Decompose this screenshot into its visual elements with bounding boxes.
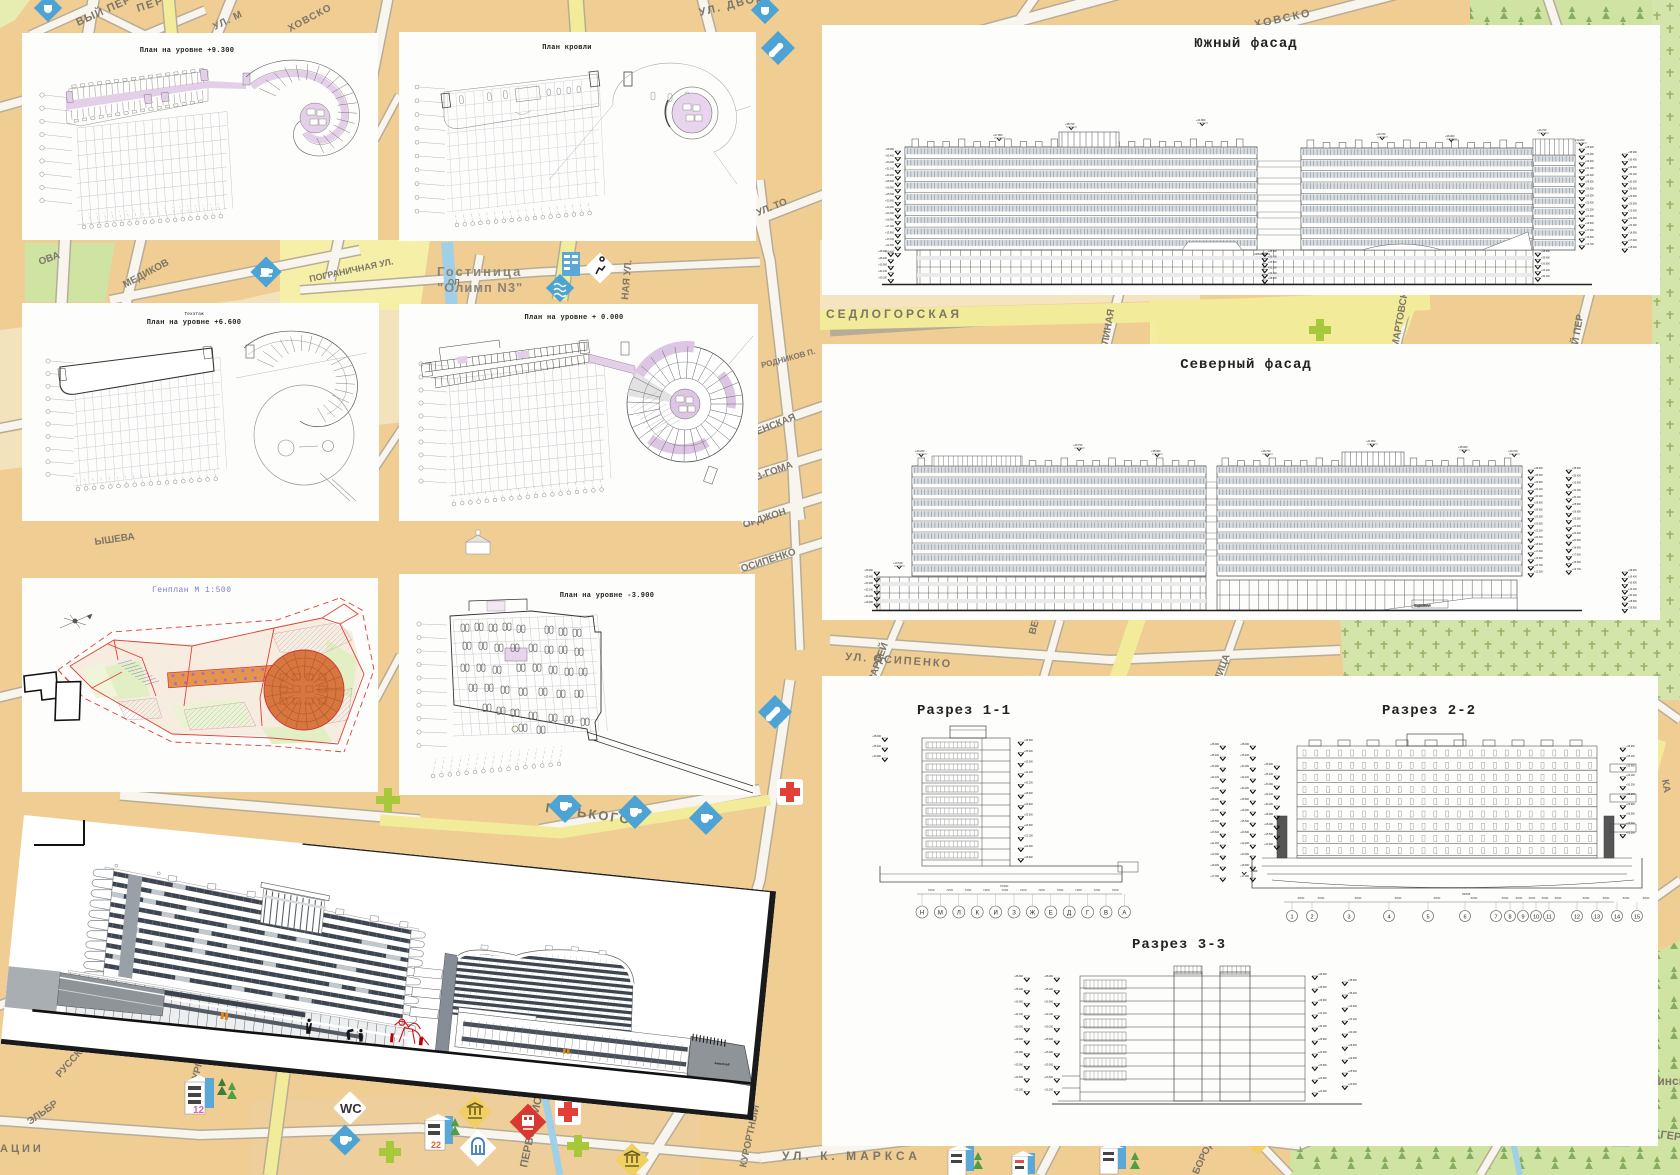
- svg-text:12: 12: [1574, 915, 1580, 921]
- svg-text:+20.300: +20.300: [885, 212, 894, 215]
- svg-text:+35.400: +35.400: [872, 745, 881, 748]
- svg-text:+38.900: +38.900: [1024, 739, 1033, 742]
- svg-text:Гостиница: Гостиница: [437, 264, 522, 279]
- svg-text:+35.400: +35.400: [1348, 992, 1357, 995]
- svg-text:+33.900: +33.900: [885, 161, 894, 164]
- svg-text:+23.600: +23.600: [1240, 831, 1249, 834]
- svg-text:+25.500: +25.500: [1348, 1070, 1357, 1073]
- svg-text:+35.400: +35.400: [1628, 159, 1637, 162]
- svg-text:+38.900: +38.900: [1458, 445, 1468, 449]
- svg-text:6000: 6000: [1643, 896, 1650, 900]
- svg-text:+30.200: +30.200: [1210, 787, 1219, 790]
- svg-text:+30.200: +30.200: [878, 277, 887, 280]
- svg-text:+33.900: +33.900: [1268, 261, 1277, 264]
- svg-text:+23.600: +23.600: [1348, 1083, 1357, 1086]
- svg-text:+30.200: +30.200: [1348, 1031, 1357, 1034]
- svg-text:6000: 6000: [1434, 896, 1441, 900]
- svg-text:+20.300: +20.300: [1534, 536, 1543, 539]
- svg-text:8: 8: [1508, 915, 1511, 921]
- svg-text:Северный фасад: Северный фасад: [1180, 357, 1312, 373]
- svg-text:6000: 6000: [1298, 896, 1305, 900]
- svg-text:+38.900: +38.900: [864, 569, 873, 572]
- svg-text:В: В: [1104, 911, 1108, 917]
- svg-text:+30.200: +30.200: [1541, 275, 1550, 278]
- svg-text:+26.900: +26.900: [1318, 1051, 1327, 1054]
- svg-text:7200: 7200: [1112, 888, 1119, 892]
- svg-text:Южный фасад: Южный фасад: [1194, 36, 1297, 52]
- svg-text:+30.200: +30.200: [1268, 272, 1277, 275]
- svg-text:+25.500: +25.500: [1626, 812, 1635, 815]
- svg-text:+32.100: +32.100: [1534, 488, 1543, 491]
- svg-text:+39.200: +39.200: [915, 449, 925, 453]
- svg-text:+22.200: +22.200: [1572, 532, 1581, 535]
- svg-text:+32.100: +32.100: [878, 270, 887, 273]
- svg-text:14: 14: [1614, 915, 1620, 921]
- svg-text:+30.200: +30.200: [885, 174, 894, 177]
- svg-text:+38.900: +38.900: [1534, 467, 1543, 470]
- svg-text:1: 1: [1290, 915, 1293, 921]
- svg-text:+18.900: +18.900: [1534, 543, 1543, 546]
- svg-text:7200: 7200: [1057, 888, 1064, 892]
- svg-text:+18.900: +18.900: [1210, 864, 1219, 867]
- svg-text:+35.400: +35.400: [1628, 575, 1637, 578]
- svg-text:+26.900: +26.900: [1585, 188, 1594, 191]
- svg-text:+28.900: +28.900: [1268, 277, 1277, 280]
- svg-text:+35.400: +35.400: [1240, 754, 1249, 757]
- svg-text:+18.900: +18.900: [1585, 222, 1594, 225]
- svg-text:+26.900: +26.900: [885, 187, 894, 190]
- svg-text:+32.100: +32.100: [1628, 588, 1637, 591]
- svg-text:КА: КА: [1659, 779, 1672, 794]
- svg-text:+25.500: +25.500: [1210, 820, 1219, 823]
- svg-text:+38.900: +38.900: [885, 148, 894, 151]
- svg-text:+36.900: +36.900: [1445, 134, 1455, 138]
- svg-text:+40.700: +40.700: [1376, 132, 1386, 136]
- svg-text:6000: 6000: [1516, 896, 1523, 900]
- svg-text:+26.900: +26.900: [1534, 509, 1543, 512]
- svg-text:+33.900: +33.900: [1264, 783, 1273, 786]
- svg-text:+28.900: +28.900: [1626, 793, 1635, 796]
- svg-text:+32.100: +32.100: [1044, 1013, 1053, 1016]
- svg-text:+13.700: +13.700: [885, 238, 894, 241]
- svg-text:+17.000: +17.000: [1210, 875, 1219, 878]
- svg-text:+33.900: +33.900: [1585, 160, 1594, 163]
- svg-text:+28.900: +28.900: [1044, 1038, 1053, 1041]
- svg-text:7200: 7200: [1001, 888, 1008, 892]
- svg-text:+38.900: +38.900: [1210, 743, 1219, 746]
- svg-text:+18.900: +18.900: [1628, 232, 1637, 235]
- svg-text:+35.400: +35.400: [1541, 256, 1550, 259]
- svg-text:+35.400: +35.400: [1264, 773, 1273, 776]
- svg-text:План на уровне + 0.000: План на уровне + 0.000: [524, 314, 623, 322]
- svg-text:Н: Н: [920, 911, 924, 917]
- svg-text:+33.900: +33.900: [1024, 760, 1033, 763]
- svg-text:+25.500: +25.500: [1534, 516, 1543, 519]
- svg-text:Разрез 1-1: Разрез 1-1: [917, 703, 1011, 719]
- svg-text:+23.600: +23.600: [1210, 831, 1219, 834]
- svg-text:+37.800: +37.800: [993, 133, 1003, 137]
- svg-text:СЕДЛОГОРСКАЯ: СЕДЛОГОРСКАЯ: [826, 307, 962, 321]
- svg-text:+18.900: +18.900: [1572, 546, 1581, 549]
- svg-text:+38.900: +38.900: [1541, 250, 1550, 253]
- svg-text:+32.100: +32.100: [1264, 793, 1273, 796]
- svg-text:6: 6: [1463, 915, 1466, 921]
- svg-text:+38.900: +38.900: [1628, 151, 1637, 154]
- svg-text:+33.900: +33.900: [1318, 999, 1327, 1002]
- svg-text:+22.200: +22.200: [1210, 842, 1219, 845]
- svg-text:Д: Д: [1067, 911, 1071, 917]
- svg-text:+26.900: +26.900: [1626, 803, 1635, 806]
- svg-text:+22.200: +22.200: [1014, 1089, 1023, 1092]
- svg-text:7200: 7200: [965, 888, 972, 892]
- svg-text:WC: WC: [340, 1101, 362, 1116]
- svg-text:+17.000: +17.000: [1572, 554, 1581, 557]
- svg-text:+40.700: +40.700: [1508, 449, 1518, 453]
- svg-text:+26.900: +26.900: [1264, 823, 1273, 826]
- svg-text:+30.200: +30.200: [1628, 180, 1637, 183]
- svg-text:З: З: [1012, 911, 1016, 917]
- svg-text:+17.000: +17.000: [1240, 875, 1249, 878]
- svg-text:+22.200: +22.200: [1024, 835, 1033, 838]
- svg-text:7200: 7200: [1038, 888, 1045, 892]
- svg-text:+28.900: +28.900: [864, 601, 873, 604]
- svg-text:+35.400: +35.400: [1534, 474, 1543, 477]
- svg-text:+12.300: +12.300: [885, 244, 894, 247]
- svg-text:+30.200: +30.200: [864, 595, 873, 598]
- svg-text:+28.900: +28.900: [1014, 1038, 1023, 1041]
- svg-text:6000: 6000: [1471, 896, 1478, 900]
- svg-text:+38.900: +38.900: [1348, 979, 1357, 982]
- svg-text:6000: 6000: [1542, 896, 1549, 900]
- svg-text:+38.900: +38.900: [1151, 449, 1161, 453]
- svg-text:+23.600: +23.600: [1044, 1076, 1053, 1079]
- svg-text:+32.100: +32.100: [1014, 1013, 1023, 1016]
- svg-text:+38.900: +38.900: [1318, 973, 1327, 976]
- svg-text:+20.300: +20.300: [1024, 845, 1033, 848]
- svg-text:+30.200: +30.200: [1626, 784, 1635, 787]
- svg-text:4: 4: [1387, 915, 1390, 921]
- svg-text:+28.900: +28.900: [1572, 503, 1581, 506]
- svg-text:+33.900: +33.900: [872, 755, 881, 758]
- svg-text:+25.500: +25.500: [885, 193, 894, 196]
- svg-text:6000: 6000: [1395, 896, 1402, 900]
- svg-text:6000: 6000: [1355, 896, 1362, 900]
- svg-text:+13.700: +13.700: [1572, 568, 1581, 571]
- svg-text:+12.300: +12.300: [1534, 571, 1543, 574]
- svg-text:7200: 7200: [946, 888, 953, 892]
- svg-text:+25.500: +25.500: [1264, 833, 1273, 836]
- svg-text:+22.200: +22.200: [1626, 832, 1635, 835]
- svg-text:+30.200: +30.200: [1024, 782, 1033, 785]
- svg-text:2: 2: [1310, 915, 1313, 921]
- svg-text:+35.400: +35.400: [1210, 754, 1219, 757]
- svg-text:+32.100: +32.100: [885, 167, 894, 170]
- svg-text:+26.900: +26.900: [1240, 809, 1249, 812]
- svg-text:+20.300: +20.300: [1585, 215, 1594, 218]
- svg-text:"Олимп N3": "Олимп N3": [437, 280, 523, 295]
- svg-text:+38.900: +38.900: [1626, 745, 1635, 748]
- svg-text:+23.600: +23.600: [1628, 210, 1637, 213]
- svg-text:+28.900: +28.900: [1585, 181, 1594, 184]
- svg-text:6000: 6000: [1555, 896, 1562, 900]
- svg-text:+38.900: +38.900: [1572, 467, 1581, 470]
- svg-text:+32.100: +32.100: [1268, 266, 1277, 269]
- svg-text:План на уровне -3.900: План на уровне -3.900: [560, 592, 655, 600]
- svg-text:План кровли: План кровли: [542, 44, 592, 52]
- svg-text:К: К: [975, 911, 979, 917]
- svg-text:+30.200: +30.200: [1044, 1026, 1053, 1029]
- svg-text:+35.400: +35.400: [864, 576, 873, 579]
- svg-text:+32.100: +32.100: [1318, 1012, 1327, 1015]
- svg-text:+25.500: +25.500: [1628, 202, 1637, 205]
- svg-text:+17.000: +17.000: [1585, 229, 1594, 232]
- svg-text:+41.800: +41.800: [1196, 118, 1206, 122]
- svg-text:+30.200: +30.200: [1628, 594, 1637, 597]
- svg-text:+35.400: +35.400: [1044, 988, 1053, 991]
- svg-text:+28.900: +28.900: [1534, 502, 1543, 505]
- svg-text:+41.800: +41.800: [1366, 439, 1376, 443]
- svg-text:+30.200: +30.200: [1318, 1025, 1327, 1028]
- svg-text:+20.300: +20.300: [1240, 853, 1249, 856]
- svg-text:+26.900: +26.900: [1014, 1051, 1023, 1054]
- svg-text:6000: 6000: [1318, 896, 1325, 900]
- svg-text:Разрез 3-3: Разрез 3-3: [1132, 937, 1226, 953]
- svg-text:+25.500: +25.500: [1585, 195, 1594, 198]
- svg-text:+33.900: +33.900: [1628, 166, 1637, 169]
- svg-text:Л: Л: [957, 911, 961, 917]
- svg-text:+33.900: +33.900: [1628, 582, 1637, 585]
- svg-text:+28.900: +28.900: [1210, 798, 1219, 801]
- svg-text:+38.900: +38.900: [1585, 146, 1594, 149]
- svg-text:+23.600: +23.600: [1534, 522, 1543, 525]
- svg-text:7200: 7200: [1093, 888, 1100, 892]
- svg-text:АЦИИ: АЦИИ: [0, 1143, 44, 1155]
- svg-text:+22.200: +22.200: [1240, 842, 1249, 845]
- svg-text:5: 5: [1426, 915, 1429, 921]
- svg-text:+32.100: +32.100: [864, 588, 873, 591]
- svg-text:+25.500: +25.500: [1044, 1063, 1053, 1066]
- svg-text:+15.600: +15.600: [1572, 561, 1581, 564]
- svg-text:+32.100: +32.100: [1210, 776, 1219, 779]
- svg-text:3: 3: [1347, 915, 1350, 921]
- svg-text:+38.900: +38.900: [1264, 763, 1273, 766]
- svg-text:+30.200: +30.200: [1264, 803, 1273, 806]
- svg-text:+28.900: +28.900: [885, 180, 894, 183]
- svg-text:+28.900: +28.900: [1628, 600, 1637, 603]
- svg-text:+20.300: +20.300: [1572, 539, 1581, 542]
- svg-text:67900: 67900: [1000, 884, 1009, 888]
- svg-text:+33.900: +33.900: [1348, 1005, 1357, 1008]
- svg-text:+38.700: +38.700: [1065, 122, 1075, 126]
- svg-text:+33.900: +33.900: [1044, 1000, 1053, 1003]
- svg-text:12: 12: [193, 1105, 205, 1116]
- svg-text:+18.900: +18.900: [885, 219, 894, 222]
- svg-text:+26.900: +26.900: [1572, 510, 1581, 513]
- svg-text:7200: 7200: [928, 888, 935, 892]
- svg-text:+15.600: +15.600: [1534, 557, 1543, 560]
- svg-text:И: И: [993, 911, 997, 917]
- svg-text:+39.200: +39.200: [1575, 138, 1585, 142]
- svg-text:+32.100: +32.100: [1626, 774, 1635, 777]
- svg-text:План на уровне +6.600: План на уровне +6.600: [147, 319, 242, 327]
- svg-text:6000: 6000: [1603, 896, 1610, 900]
- svg-text:+30.200: +30.200: [1572, 496, 1581, 499]
- svg-text:Е: Е: [1049, 911, 1053, 917]
- svg-text:+33.900: +33.900: [1541, 263, 1550, 266]
- svg-text:+15.600: +15.600: [1585, 236, 1594, 239]
- svg-text:+38.900: +38.900: [1268, 250, 1277, 253]
- svg-text:+38.900: +38.900: [1014, 975, 1023, 978]
- svg-text:+28.900: +28.900: [1240, 798, 1249, 801]
- svg-text:+32.100: +32.100: [1024, 771, 1033, 774]
- svg-text:6000: 6000: [1529, 896, 1536, 900]
- svg-text:+15.600: +15.600: [1628, 246, 1637, 249]
- svg-text:7: 7: [1494, 915, 1497, 921]
- svg-text:+33.900: +33.900: [1240, 765, 1249, 768]
- svg-text:Генплан М 1:500: Генплан М 1:500: [152, 586, 232, 595]
- svg-text:+22.200: +22.200: [1534, 529, 1543, 532]
- svg-text:+18.900: +18.900: [1024, 856, 1033, 859]
- svg-text:+23.600: +23.600: [1264, 843, 1273, 846]
- svg-text:+22.200: +22.200: [1318, 1090, 1327, 1093]
- svg-text:+23.600: +23.600: [1572, 525, 1581, 528]
- svg-text:УЛ. К. МАРКСА: УЛ. К. МАРКСА: [782, 1149, 921, 1163]
- svg-text:+26.900: +26.900: [1210, 809, 1219, 812]
- svg-text:А: А: [1122, 911, 1126, 917]
- svg-text:7200: 7200: [983, 888, 990, 892]
- svg-text:+28.900: +28.900: [1264, 813, 1273, 816]
- svg-text:+35.400: +35.400: [1585, 153, 1594, 156]
- svg-text:Ж: Ж: [1030, 911, 1036, 917]
- svg-text:Техэтаж: Техэтаж: [184, 311, 204, 317]
- svg-text:+30.200: +30.200: [1534, 495, 1543, 498]
- svg-text:+40.700: +40.700: [1537, 128, 1547, 132]
- svg-text:Г: Г: [1086, 911, 1090, 917]
- svg-text:15: 15: [1634, 915, 1640, 921]
- svg-text:+23.600: +23.600: [1318, 1077, 1327, 1080]
- svg-text:План на уровне +9.300: План на уровне +9.300: [140, 47, 235, 55]
- svg-text:6000: 6000: [1623, 896, 1630, 900]
- svg-text:+38.700: +38.700: [1261, 449, 1271, 453]
- svg-text:+35.400: +35.400: [885, 155, 894, 158]
- svg-text:+35.400: +35.400: [878, 257, 887, 260]
- svg-text:+35.400: +35.400: [1572, 474, 1581, 477]
- svg-text:+32.100: +32.100: [1348, 1018, 1357, 1021]
- svg-text:+40.700: +40.700: [1073, 443, 1083, 447]
- svg-text:7200: 7200: [1020, 888, 1027, 892]
- svg-text:+33.900: +33.900: [1626, 764, 1635, 767]
- svg-text:+10.540: +10.540: [893, 561, 903, 565]
- svg-text:+38.900: +38.900: [1240, 743, 1249, 746]
- svg-text:+28.900: +28.900: [1024, 792, 1033, 795]
- svg-text:+23.600: +23.600: [885, 199, 894, 202]
- svg-text:+33.900: +33.900: [1210, 765, 1219, 768]
- svg-text:9: 9: [1521, 915, 1524, 921]
- svg-text:+13.700: +13.700: [1534, 564, 1543, 567]
- svg-text:+35.400: +35.400: [1626, 755, 1635, 758]
- svg-text:6000: 6000: [1502, 896, 1509, 900]
- svg-text:+25.500: +25.500: [1024, 813, 1033, 816]
- svg-text:+38.900: +38.900: [872, 735, 881, 738]
- svg-text:7200: 7200: [1075, 888, 1082, 892]
- svg-text:6000: 6000: [1583, 896, 1590, 900]
- svg-text:+28.900: +28.900: [1318, 1038, 1327, 1041]
- svg-text:+32.100: +32.100: [1572, 489, 1581, 492]
- svg-text:+33.900: +33.900: [1534, 481, 1543, 484]
- svg-text:+20.300: +20.300: [1628, 224, 1637, 227]
- svg-text:+25.500: +25.500: [1318, 1064, 1327, 1067]
- svg-text:+35.400: +35.400: [1024, 750, 1033, 753]
- svg-text:+32.100: +32.100: [1240, 776, 1249, 779]
- svg-text:+22.200: +22.200: [1585, 208, 1594, 211]
- svg-text:+23.600: +23.600: [1024, 824, 1033, 827]
- svg-text:+35.400: +35.400: [1268, 256, 1277, 259]
- svg-text:+26.900: +26.900: [1348, 1057, 1357, 1060]
- svg-text:ПОДЗЕМНАЯ: ПОДЗЕМНАЯ: [1414, 604, 1431, 608]
- svg-text:+25.500: +25.500: [1572, 518, 1581, 521]
- svg-text:+23.600: +23.600: [1585, 201, 1594, 204]
- svg-text:+26.900: +26.900: [1044, 1051, 1053, 1054]
- svg-text:+17.000: +17.000: [1628, 239, 1637, 242]
- svg-text:+32.100: +32.100: [1628, 173, 1637, 176]
- svg-text:+33.900: +33.900: [864, 582, 873, 585]
- svg-text:+22.200: +22.200: [1628, 217, 1637, 220]
- svg-text:+13.700: +13.700: [1585, 243, 1594, 246]
- svg-text:+15.600: +15.600: [885, 231, 894, 234]
- svg-text:+33.900: +33.900: [1014, 1000, 1023, 1003]
- svg-text:+25.500: +25.500: [1240, 820, 1249, 823]
- svg-text:+30.200: +30.200: [1014, 1026, 1023, 1029]
- svg-text:Разрез 2-2: Разрез 2-2: [1382, 703, 1476, 719]
- svg-text:99808: 99808: [1462, 892, 1471, 896]
- svg-text:+38.900: +38.900: [878, 250, 887, 253]
- svg-text:+30.200: +30.200: [1585, 174, 1594, 177]
- svg-text:+26.900: +26.900: [1024, 803, 1033, 806]
- svg-text:+23.600: +23.600: [1014, 1076, 1023, 1079]
- svg-text:+30.200: +30.200: [1240, 787, 1249, 790]
- svg-text:+23.600: +23.600: [1626, 822, 1635, 825]
- svg-text:+35.400: +35.400: [1014, 988, 1023, 991]
- svg-text:+38.900: +38.900: [1044, 975, 1053, 978]
- svg-text:+33.900: +33.900: [1572, 482, 1581, 485]
- svg-text:+35.400: +35.400: [1318, 986, 1327, 989]
- svg-text:+33.900: +33.900: [878, 263, 887, 266]
- svg-text:+17.000: +17.000: [1534, 550, 1543, 553]
- svg-text:+17.000: +17.000: [885, 225, 894, 228]
- svg-text:+38.900: +38.900: [1628, 569, 1637, 572]
- svg-text:22: 22: [431, 1140, 441, 1150]
- svg-text:+26.900: +26.900: [1628, 195, 1637, 198]
- svg-text:+22.200: +22.200: [1044, 1089, 1053, 1092]
- svg-text:+26.900: +26.900: [1628, 606, 1637, 609]
- svg-text:13: 13: [1594, 915, 1600, 921]
- svg-text:+18.900: +18.900: [1240, 864, 1249, 867]
- svg-text:+22.200: +22.200: [885, 206, 894, 209]
- svg-text:+20.300: +20.300: [1210, 853, 1219, 856]
- svg-text:+25.500: +25.500: [1014, 1063, 1023, 1066]
- svg-text:+32.100: +32.100: [1541, 269, 1550, 272]
- svg-text:+28.900: +28.900: [1628, 188, 1637, 191]
- svg-text:+32.100: +32.100: [1585, 167, 1594, 170]
- svg-text:+28.900: +28.900: [1348, 1044, 1357, 1047]
- svg-text:М: М: [938, 911, 943, 917]
- svg-text:11: 11: [1546, 915, 1552, 921]
- svg-text:10: 10: [1533, 915, 1539, 921]
